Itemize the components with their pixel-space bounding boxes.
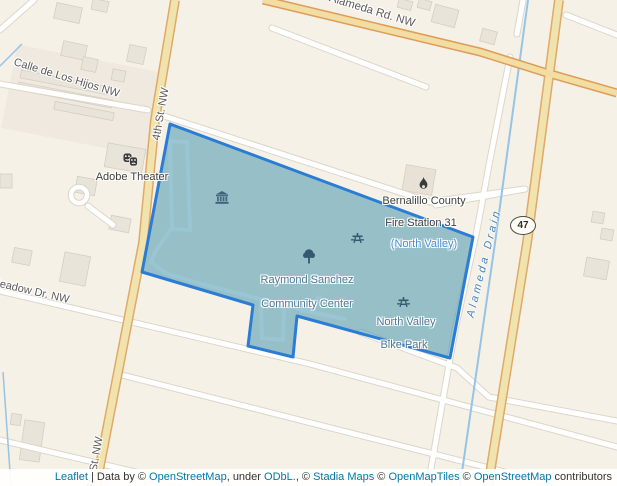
attribution-text: © <box>374 471 388 483</box>
attribution-bar: Leaflet | Data by © OpenStreetMap, under… <box>0 469 617 486</box>
route-47-badge: 47 <box>510 216 536 235</box>
stadia-maps-link[interactable]: Stadia Maps <box>313 471 374 483</box>
openstreetmap-link[interactable]: OpenStreetMap <box>149 471 227 483</box>
attribution-text: | Data by © <box>88 471 149 483</box>
attribution-text: contributors <box>551 471 612 483</box>
fire-station-building <box>402 165 436 196</box>
odbl-link[interactable]: ODbL. <box>264 471 296 483</box>
map-canvas[interactable]: Calle de Los Hijos NW 4th St. NW 4th St.… <box>0 0 617 486</box>
map-tiles <box>0 0 617 486</box>
openstreetmap-link[interactable]: OpenStreetMap <box>474 471 552 483</box>
attribution-text: , under <box>227 471 264 483</box>
attribution-text: © <box>460 471 474 483</box>
attribution-text: , © <box>296 471 313 483</box>
openmaptiles-link[interactable]: OpenMapTiles <box>388 471 459 483</box>
leaflet-link[interactable]: Leaflet <box>55 471 88 483</box>
